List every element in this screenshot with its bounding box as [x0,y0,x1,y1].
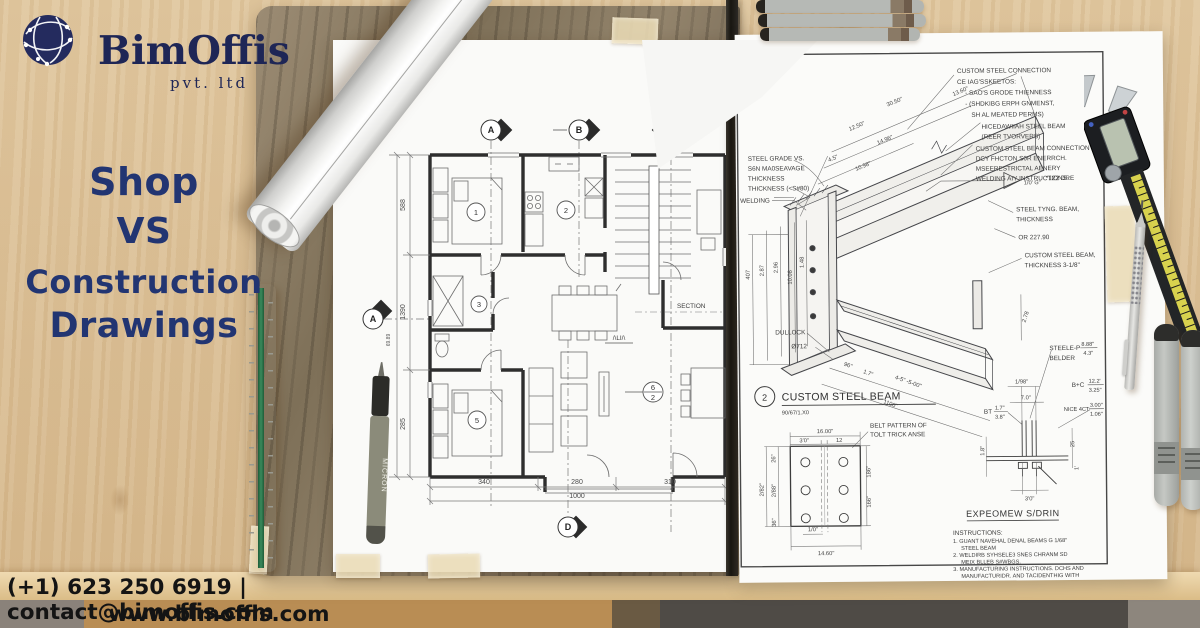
svg-text:10.98": 10.98" [855,161,873,173]
svg-text:A: A [370,314,377,324]
svg-text:A: A [488,125,495,135]
svg-text:DULLOCK: DULLOCK [775,329,806,336]
svg-text:1/0": 1/0" [808,527,818,533]
svg-text:D: D [565,522,572,532]
svg-text:TOLT TRICK ANSE: TOLT TRICK ANSE [870,431,925,438]
svg-text:4-5" -5-00": 4-5" -5-00" [894,375,922,390]
svg-text:CUSTOM STEEL CONNECTION: CUSTOM STEEL CONNECTION [957,67,1052,75]
svg-text:Ø712: Ø712 [791,343,807,350]
svg-text:THICKNESS: THICKNESS [1016,216,1053,223]
pencil-tip [1136,207,1147,228]
svg-text:WELDING: WELDING [740,198,770,205]
svg-text:10.08: 10.08 [788,270,794,285]
svg-text:1.7": 1.7" [995,406,1005,412]
svg-text:DCY FHCTON S0R ENERRCH.: DCY FHCTON S0R ENERRCH. [976,155,1067,163]
pen-body-label: MICRON [366,416,389,529]
svg-text:1000: 1000 [569,493,585,500]
svg-text:3.25": 3.25" [1089,388,1102,394]
svg-text:MANUFACTURIDR. AND TACIDENTHIG: MANUFACTURIDR. AND TACIDENTHIG WITH [961,573,1079,580]
svg-text:3.00": 3.00" [1090,403,1103,409]
gray-marker-vertical [1181,330,1200,510]
svg-text:340: 340 [478,479,490,486]
svg-text:6: 6 [651,383,655,392]
svg-text:- (SHDKIBG ERPH GNMENST,: - (SHDKIBG ERPH GNMENST, [965,100,1054,108]
brand-name: BimOffis [98,28,290,74]
svg-text:1.48: 1.48 [800,257,806,268]
svg-text:186": 186" [866,466,872,478]
svg-text:2: 2 [762,393,767,403]
marker-label-band [1181,448,1200,480]
svg-text:1/0' G": 1/0' G" [1024,180,1041,186]
svg-text:280: 280 [571,479,583,486]
svg-text:STEEL TYNG. BEAM,: STEEL TYNG. BEAM, [1016,206,1079,214]
pen-end-cap [366,526,386,545]
marker-cap [1154,324,1179,341]
section-text: SECTION [677,303,706,310]
svg-text:36": 36" [772,518,778,527]
svg-text:B+C: B+C [1072,382,1085,389]
svg-text:2: 2 [564,206,568,215]
svg-text:2: 2 [651,393,655,402]
svg-text:1.8": 1.8" [980,446,986,456]
notes-block: EXPEOMEW S/DRIN INSTRUCTIONS: 1. GUANT N… [953,508,1084,583]
headline-line-4: Drawings [0,306,288,346]
svg-text:166": 166" [867,496,873,508]
pen-grip [371,376,389,417]
stair-label: /\LI/\ [613,335,626,342]
svg-text:407: 407 [746,270,752,280]
svg-text:96": 96" [843,362,853,370]
svg-text:OR 227.90: OR 227.90 [1018,234,1049,241]
svg-text:5: 5 [475,416,479,425]
svg-text:1: 1 [474,208,478,217]
svg-text:69.89: 69.89 [386,334,392,347]
svg-text:7.0": 7.0" [1021,395,1031,401]
svg-text:1.06": 1.06" [1090,412,1103,418]
svg-text:THICKNESS 3-1/8": THICKNESS 3-1/8" [1025,262,1080,269]
svg-text:2.78: 2.78 [1022,311,1031,324]
gray-marker-horizontal [760,28,920,41]
svg-text:2/88": 2/88" [772,484,778,497]
svg-text:CE IAG'SSKEETOS:: CE IAG'SSKEETOS: [957,78,1016,86]
svg-text:588: 588 [400,199,407,211]
gray-marker-horizontal [756,0,924,13]
brand-logo: BimOffis pvt. ltd [20,12,320,92]
svg-text:2. WELDIRB SYHSELE3 SNES CHRAN: 2. WELDIRB SYHSELE3 SNES CHRANM SD [953,552,1067,559]
headline-line-3: Construction [0,263,288,301]
svg-text:BELT PATTERN OF: BELT PATTERN OF [870,422,927,429]
marker-cap [1181,330,1200,347]
svg-text:2/82": 2/82" [760,483,766,496]
svg-text:STEEL BEAM: STEEL BEAM [961,546,996,552]
svg-text:285: 285 [400,418,407,430]
svg-text:NICE 4CT: NICE 4CT [1064,407,1090,413]
gray-marker-vertical [1154,324,1179,506]
svg-text:CUSTOM STEEL BEAM: CUSTOM STEEL BEAM [782,390,901,403]
svg-text:2.87: 2.87 [760,265,766,276]
gray-marker-horizontal [758,14,926,27]
drawing-title: 2 CUSTOM STEEL BEAM 90/67/1.X0 [755,385,936,417]
brand-suffix: pvt. ltd [170,74,248,92]
svg-text:1. GUANT NAVEHAL DENAL BEAMS G: 1. GUANT NAVEHAL DENAL BEAMS G 1/68" [953,538,1067,545]
svg-text:30.50": 30.50" [886,97,904,109]
svg-text:(REER TVORVERS): (REER TVORVERS) [981,133,1040,141]
svg-text:12: 12 [836,438,843,444]
svg-text:14.96": 14.96" [876,135,894,147]
svg-text:MEIX BLLEB S#WBGS.: MEIX BLLEB S#WBGS. [961,559,1021,566]
svg-text:3. MANUFACTURING INSTRUCTIONS.: 3. MANUFACTURING INSTRUCTIONS. DCHS AND [953,566,1084,573]
svg-text:1': 1' [1074,466,1080,470]
svg-text:2.96: 2.96 [774,262,780,273]
marker-label-band [1154,442,1179,474]
svg-text:S6N MA0SEAVAGE: S6N MA0SEAVAGE [748,165,805,172]
bolt-plate-detail: 16.00" 3'0" 12 2/82" 2/88" 26" 36" 186" … [759,422,928,557]
svg-text:HICEDAWIIAH STEEL BEAM: HICEDAWIIAH STEEL BEAM [981,123,1065,131]
svg-text:90/67/1.X0: 90/67/1.X0 [782,410,809,416]
svg-text:BELDER: BELDER [1049,355,1075,362]
svg-text:12.2': 12.2' [1089,379,1101,385]
svg-text:- SAO'S GRODE THIENNESS: - SAO'S GRODE THIENNESS [965,89,1051,97]
svg-text:3'0": 3'0" [1025,496,1035,502]
svg-text:14.60": 14.60" [818,551,835,557]
svg-text:310: 310 [664,479,676,486]
svg-text:STEEL GRADE VS.: STEEL GRADE VS. [748,155,805,162]
svg-text:EXPEOMEW S/DRIN: EXPEOMEW S/DRIN [966,508,1060,519]
svg-text:26": 26" [771,454,777,463]
website-line: www.bimoffis.com [0,602,438,627]
svg-text:25: 25 [1070,441,1076,448]
svg-text:THICKNESS: THICKNESS [748,175,785,182]
svg-text:3'0": 3'0" [799,438,809,444]
section-marker-a-left: A 69.89 [363,300,429,347]
svg-text:B: B [576,125,583,135]
headline-line-2: VS [0,211,288,252]
svg-text:3: 3 [477,300,481,309]
svg-text:16.00": 16.00" [817,429,834,435]
svg-text:INSTRUCTIONS:: INSTRUCTIONS: [953,530,1003,537]
dimension-labels: 588 1390 285 340 280 310 1000 [400,199,676,500]
detail-reference-bubble: 6 2 [625,382,663,402]
svg-text:12.50": 12.50" [848,121,866,133]
svg-text:3.8": 3.8" [995,415,1005,421]
headline-line-1: Shop [0,160,288,204]
svg-text:STEELE-P: STEELE-P [1049,345,1080,352]
globe-network-icon [20,12,76,68]
room-labels: 1 2 3 5 6 2 SECTION /\LI/\ [467,201,725,429]
svg-text:BT: BT [984,409,992,416]
svg-text:SH AL MEATED PERMS): SH AL MEATED PERMS) [971,111,1044,119]
stairs [615,166,691,294]
svg-text:1.7": 1.7" [862,369,874,378]
section-marker-d-bottom: D [558,340,587,538]
svg-text:THICKNESS (<S#80): THICKNESS (<S#80) [748,185,809,193]
banner: A B D A 69.89 [0,0,1200,628]
svg-text:1390: 1390 [400,304,407,320]
svg-text:*122 DRE: *122 DRE [1046,175,1074,182]
svg-text:MSEERESTRICTAL AENERY: MSEERESTRICTAL AENERY [976,165,1062,173]
svg-text:CUSTOM STEEL BEAM CONNECTION: CUSTOM STEEL BEAM CONNECTION [976,145,1090,153]
svg-text:1/98": 1/98" [1015,379,1028,385]
section-marker-a-top: A [481,119,512,508]
